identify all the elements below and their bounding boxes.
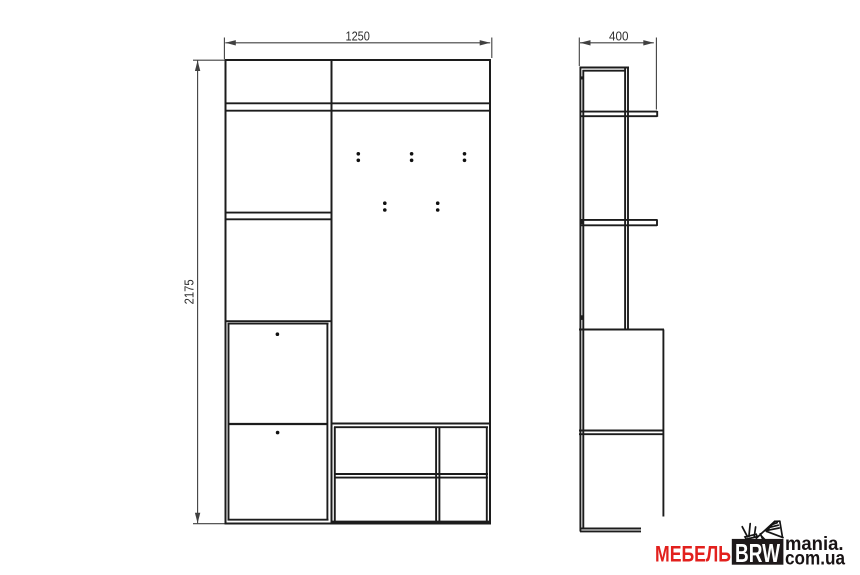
svg-text:1250: 1250: [345, 29, 370, 43]
svg-text:2175: 2175: [182, 279, 196, 304]
svg-text:com.ua: com.ua: [785, 548, 845, 570]
svg-text:МЕБЕЛЬ: МЕБЕЛЬ: [655, 542, 731, 567]
svg-text:400: 400: [609, 29, 629, 43]
svg-text:BRW: BRW: [735, 538, 780, 568]
